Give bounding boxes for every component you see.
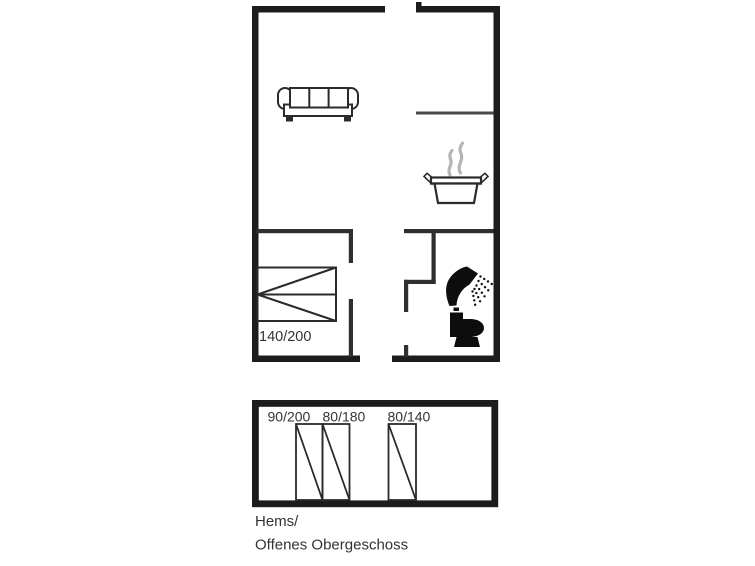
bed-diagonal [296, 424, 323, 500]
spray-dots-line [475, 289, 482, 305]
bed-diagonal [389, 424, 417, 500]
sofa-icon [278, 88, 358, 121]
bed-size-label: 140/200 [259, 329, 311, 345]
hems-caption-line1: Hems/ [255, 513, 299, 530]
wall-segment [416, 112, 494, 115]
bed-size-label: 80/180 [323, 409, 366, 425]
single-bed-icon [296, 424, 323, 500]
toilet-icon [450, 308, 484, 348]
wall-segment [256, 229, 353, 233]
spray-dots-line [473, 292, 476, 307]
pot-body [435, 184, 478, 204]
toilet-tank-bowl [450, 313, 484, 338]
wall-segment [252, 6, 385, 13]
wall-segment [416, 2, 422, 13]
hems-caption: Hems/ Offenes Obergeschoss [255, 513, 408, 554]
bed-size-label: 80/140 [388, 409, 431, 425]
bed-size-label: 90/200 [268, 409, 311, 425]
wall-segment [404, 280, 408, 312]
shower-spray-dots [473, 277, 493, 307]
wall-segment [416, 6, 500, 13]
wall-segment [404, 229, 494, 233]
steam-wisp [459, 143, 462, 173]
floor-plan-drawing: 140/200 90/200 80/180 80/140 [0, 0, 755, 566]
wall-segment [404, 280, 436, 284]
bed-diagonal [258, 295, 337, 322]
hems-bed-labels: 90/200 80/180 80/140 [268, 409, 431, 425]
wall-segment [349, 299, 353, 357]
single-bed-icon [389, 424, 417, 500]
bed-diagonal [258, 268, 337, 295]
hems-beds [296, 424, 416, 500]
sofa-foot [345, 116, 350, 121]
bed-diagonal [323, 424, 350, 500]
cooking-pot-icon [424, 173, 488, 203]
wall-segment [494, 6, 501, 362]
hems-caption-line2: Offenes Obergeschoss [255, 537, 408, 554]
wall-segment [349, 229, 353, 263]
hems-floor-plan: 90/200 80/180 80/140 Hems/ Offenes Oberg… [255, 403, 495, 553]
kitchen-partition [416, 112, 494, 115]
main-floor-plan: 140/200 [252, 2, 500, 362]
sofa-cushions [290, 88, 348, 108]
toilet-button [454, 308, 460, 312]
double-bed-icon [258, 268, 337, 322]
steam-icon [449, 143, 463, 175]
wall-segment [432, 229, 436, 283]
toilet-base [454, 337, 480, 347]
single-bed-icon [323, 424, 350, 500]
wall-segment [404, 345, 408, 357]
shower-icon [446, 267, 492, 307]
steam-wisp [449, 151, 452, 176]
wall-segment [252, 356, 360, 363]
floor-plan-page: 140/200 90/200 80/180 80/140 [0, 0, 755, 566]
sofa-foot [287, 116, 292, 121]
